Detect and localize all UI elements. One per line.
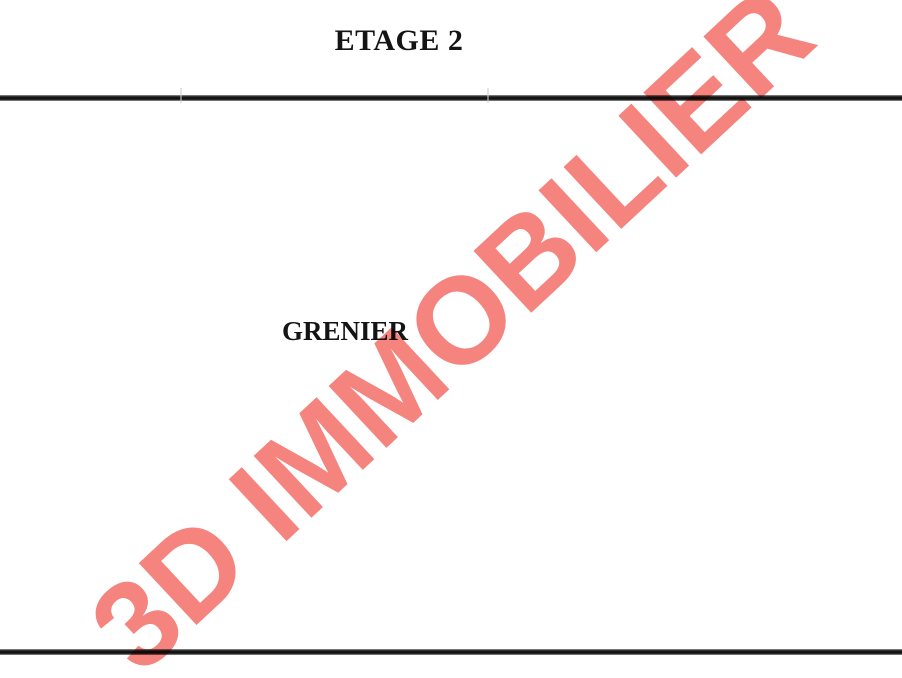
wall-junction-mark bbox=[487, 88, 489, 103]
bottom-wall-line bbox=[0, 649, 902, 655]
top-wall-line bbox=[0, 95, 902, 101]
page-title: ETAGE 2 bbox=[335, 26, 464, 56]
floor-plan-page: ETAGE 2 GRENIER 3D IMMOBILIER bbox=[0, 0, 902, 678]
wall-junction-mark bbox=[180, 88, 182, 103]
room-label-grenier: GRENIER bbox=[282, 318, 408, 345]
agency-watermark: 3D IMMOBILIER bbox=[70, 0, 834, 678]
